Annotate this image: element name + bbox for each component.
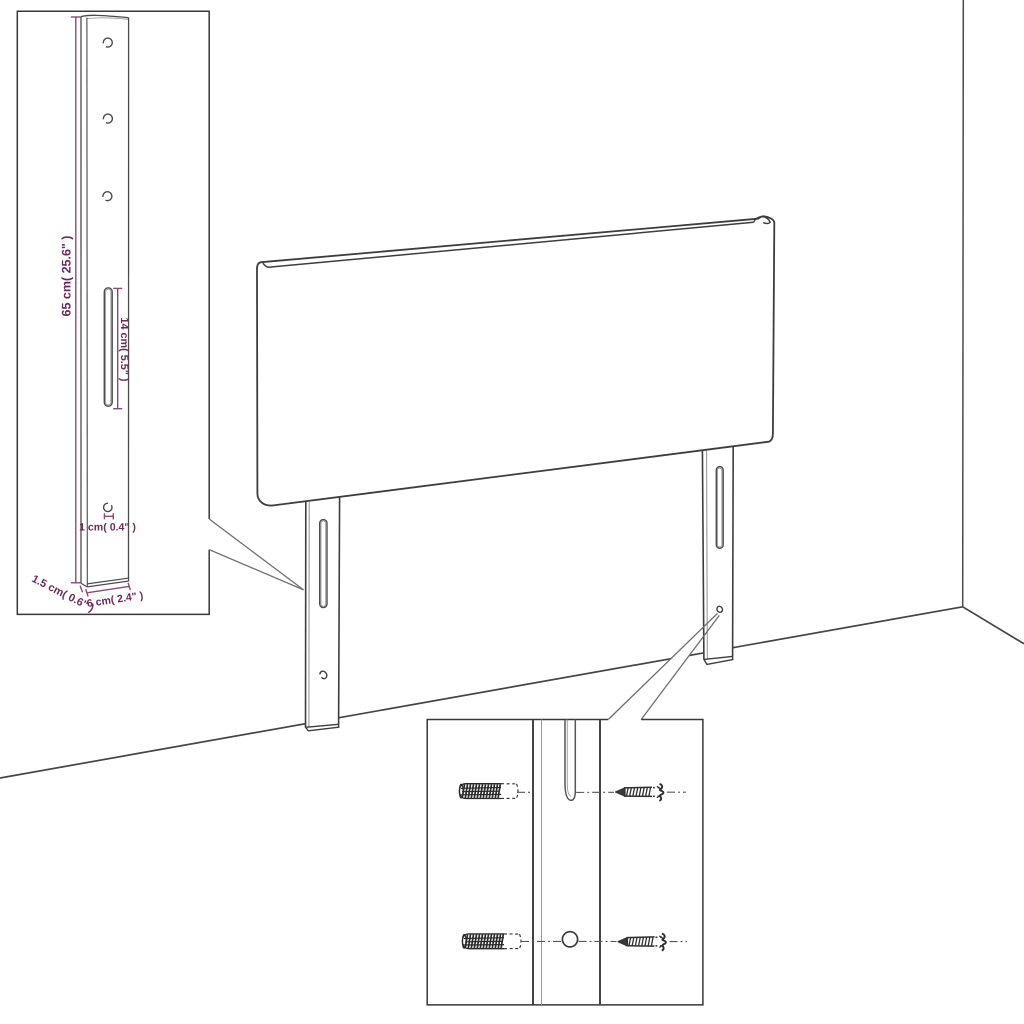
svg-text:14 cm( 5.5" ): 14 cm( 5.5" ) bbox=[118, 318, 130, 382]
svg-text:1 cm( 0.4" ): 1 cm( 0.4" ) bbox=[79, 522, 136, 534]
svg-text:65 cm( 25.6" ): 65 cm( 25.6" ) bbox=[60, 236, 74, 317]
